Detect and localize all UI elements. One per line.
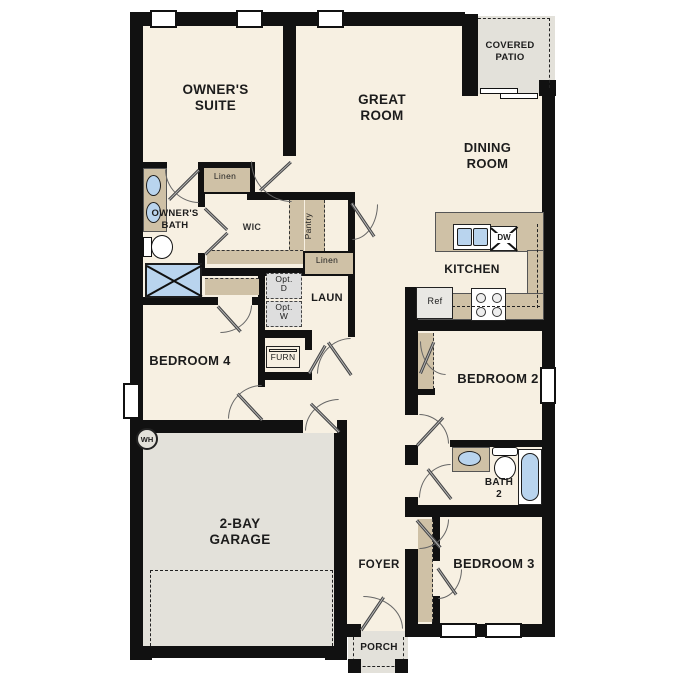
label-owners-bath: OWNER'S BATH bbox=[143, 208, 207, 231]
label-bath2: BATH 2 bbox=[478, 477, 520, 501]
label-kitchen: KITCHEN bbox=[434, 262, 510, 277]
wall-garage-bottom-post-left bbox=[130, 646, 152, 660]
owners-bath-toilet-bowl bbox=[151, 235, 173, 259]
wall-wic-top bbox=[247, 192, 355, 200]
label-linen-upper: Linen bbox=[203, 171, 247, 181]
window-great-room bbox=[236, 10, 263, 28]
porch-post-left bbox=[348, 659, 361, 673]
window-dining bbox=[317, 10, 344, 28]
wall-garage-right bbox=[334, 433, 347, 646]
wall-foyer-bottom-left bbox=[347, 624, 361, 637]
label-opt-dryer: Opt. D bbox=[266, 275, 302, 294]
bath2-sink bbox=[458, 451, 481, 466]
wall-hall-b bbox=[405, 445, 418, 465]
label-furnace: FURN bbox=[266, 352, 300, 362]
label-dining-room: DINING ROOM bbox=[445, 140, 530, 172]
kitchen-sink-basin-left bbox=[457, 228, 472, 246]
bath2-tub bbox=[521, 453, 539, 501]
label-opt-washer: Opt. W bbox=[266, 303, 302, 322]
wall-laundry-left bbox=[258, 268, 265, 338]
wall-laundry-bottom bbox=[258, 330, 312, 338]
dishwasher-label: DW bbox=[494, 233, 514, 243]
wall-bed2-closet-bottom bbox=[418, 388, 435, 395]
wall-left bbox=[130, 12, 143, 660]
wall-bed3-closet-b bbox=[432, 596, 440, 624]
kitchen-sink-basin-right bbox=[473, 228, 488, 246]
water-heater-label: WH bbox=[137, 435, 157, 444]
stove-burner-4 bbox=[492, 307, 502, 317]
label-garage: 2-BAY GARAGE bbox=[188, 516, 292, 549]
label-porch: PORCH bbox=[356, 642, 402, 654]
label-linen-lower: Linen bbox=[305, 255, 349, 265]
label-covered-patio: COVERED PATIO bbox=[473, 40, 547, 63]
window-bedroom3-1 bbox=[440, 623, 477, 638]
stove-burner-2 bbox=[492, 293, 502, 303]
wall-top bbox=[130, 12, 465, 26]
window-bedroom4 bbox=[123, 383, 140, 419]
label-great-room: GREAT ROOM bbox=[342, 92, 422, 125]
label-pantry: Pantry bbox=[303, 204, 313, 248]
label-laundry: LAUN bbox=[303, 292, 351, 305]
kitchen-counter-right bbox=[527, 250, 544, 296]
stove bbox=[471, 288, 506, 321]
stove-burner-1 bbox=[476, 293, 486, 303]
wall-garage-bottom bbox=[130, 646, 347, 658]
wall-furn-right bbox=[305, 330, 312, 350]
wall-furn-bottom bbox=[258, 372, 312, 380]
wall-hall-a bbox=[405, 331, 418, 415]
owners-bath-sink-1 bbox=[146, 175, 161, 196]
kitchen-dash-v bbox=[537, 224, 538, 308]
wall-right bbox=[542, 88, 555, 637]
window-suite-1 bbox=[150, 10, 177, 28]
kitchen-dash-h bbox=[452, 306, 540, 307]
wall-bed2-bottom bbox=[450, 440, 555, 447]
bath2-toilet-tank bbox=[492, 447, 518, 456]
label-foyer: FOYER bbox=[350, 558, 408, 572]
wall-hall-c bbox=[405, 497, 418, 517]
refrigerator-label: Ref bbox=[420, 296, 450, 307]
floor-plan: DW Ref WH bbox=[0, 0, 687, 687]
label-bedroom3: BEDROOM 3 bbox=[440, 556, 548, 572]
garage-door-dashed bbox=[150, 570, 333, 646]
label-bedroom2: BEDROOM 2 bbox=[446, 371, 550, 387]
wall-bed4-top-a bbox=[143, 297, 218, 305]
wall-bottom-right bbox=[405, 624, 555, 637]
wall-garage-bottom-post-right bbox=[325, 646, 347, 660]
label-wic: WIC bbox=[236, 222, 268, 233]
sliding-door-panel-2 bbox=[500, 93, 538, 99]
label-bedroom4: BEDROOM 4 bbox=[138, 353, 242, 369]
wall-garage-top-a bbox=[143, 420, 303, 433]
stove-burner-3 bbox=[476, 307, 486, 317]
wic-shelf-bottom bbox=[207, 250, 303, 264]
wall-bath2-bottom bbox=[418, 505, 555, 517]
label-owners-suite: OWNER'S SUITE bbox=[158, 82, 273, 115]
wall-suite-right bbox=[283, 26, 296, 156]
window-bedroom3-2 bbox=[485, 623, 522, 638]
porch-post-right bbox=[395, 659, 408, 673]
hall-storage-shelf bbox=[205, 278, 259, 295]
